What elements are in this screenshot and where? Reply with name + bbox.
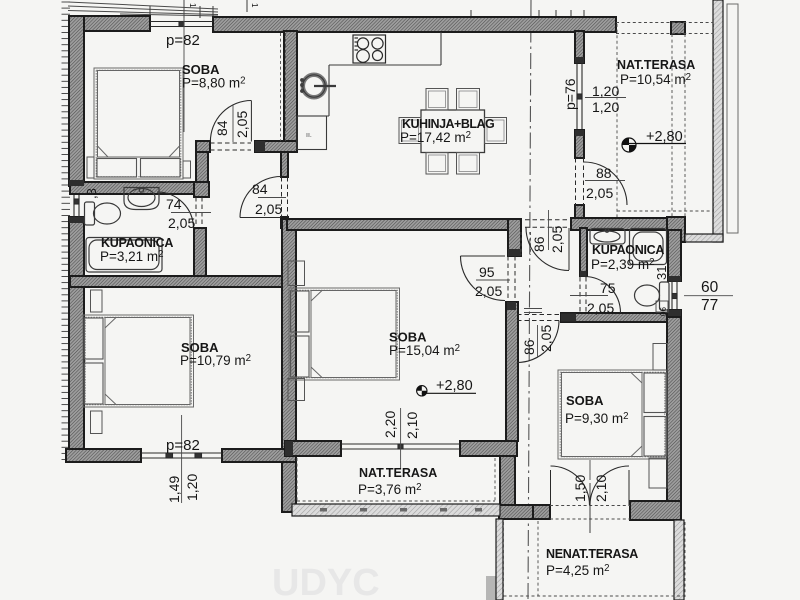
svg-text:84: 84 [214,120,230,136]
svg-text:p=76: p=76 [562,78,578,110]
svg-text:77: 77 [701,297,718,314]
svg-text:P=17,42 m2: P=17,42 m2 [400,130,471,145]
svg-text:ıı.: ıı. [306,132,312,139]
svg-text:NAT.TERASA: NAT.TERASA [617,58,695,72]
svg-text:SOBA: SOBA [566,393,604,408]
svg-text:86: 86 [531,236,547,252]
svg-text:P=15,04 m2: P=15,04 m2 [389,343,460,358]
svg-text:2,10: 2,10 [404,412,420,439]
svg-text:+2,80: +2,80 [646,129,683,145]
svg-text:p=82: p=82 [166,437,200,454]
svg-text:NAT.TERASA: NAT.TERASA [359,466,437,480]
svg-text:,3: ,3 [84,188,99,199]
svg-text:84: 84 [252,181,268,197]
svg-text:06: 06 [659,307,668,316]
svg-text:p=82: p=82 [166,32,200,49]
svg-text:2,05: 2,05 [538,325,554,352]
svg-text:1,49: 1,49 [166,476,182,503]
svg-text:2,05: 2,05 [587,300,614,316]
svg-text:P=3,21 m2: P=3,21 m2 [100,249,164,264]
svg-text:P=9,30 m2: P=9,30 m2 [565,411,629,426]
svg-text:+2,80: +2,80 [436,378,473,394]
svg-text:P=10,79 m2: P=10,79 m2 [180,353,251,368]
svg-text:P=3,76 m2: P=3,76 m2 [358,482,422,497]
svg-text:1,50: 1,50 [572,475,588,502]
svg-text:75: 75 [600,280,616,296]
svg-text:P=2,39 m2: P=2,39 m2 [591,257,655,272]
svg-text:KUHINJA+BLAG: KUHINJA+BLAG [402,117,494,131]
svg-text:74: 74 [166,196,182,212]
svg-text:NENAT.TERASA: NENAT.TERASA [546,547,638,561]
svg-text:2,05: 2,05 [549,226,565,253]
svg-text:KUPAONICA: KUPAONICA [592,243,664,257]
svg-text:2,05: 2,05 [234,111,250,138]
svg-text:1,20: 1,20 [592,83,619,99]
svg-text:2,05: 2,05 [475,283,502,299]
svg-text:31: 31 [654,266,669,280]
svg-text:2,05: 2,05 [586,185,613,201]
svg-text:P=4,25 m2: P=4,25 m2 [546,563,610,578]
svg-text:86: 86 [521,339,537,355]
svg-text:1: 1 [188,3,197,8]
svg-text:1,20: 1,20 [184,474,200,501]
svg-text:88: 88 [596,165,612,181]
svg-text:95: 95 [479,264,495,280]
svg-text:60: 60 [701,279,719,296]
svg-text:2,10: 2,10 [593,475,609,502]
svg-text:UDYC: UDYC [272,562,380,600]
svg-text:P=8,80 m2: P=8,80 m2 [182,76,246,91]
svg-text:P=10,54 m2: P=10,54 m2 [620,72,691,87]
svg-text:2,05: 2,05 [168,215,195,231]
svg-text:KUPAONICA: KUPAONICA [101,236,173,250]
svg-text:2,05: 2,05 [255,201,282,217]
svg-text:1: 1 [250,3,259,8]
svg-text:2,20: 2,20 [382,411,398,438]
svg-text:1,20: 1,20 [592,99,619,115]
